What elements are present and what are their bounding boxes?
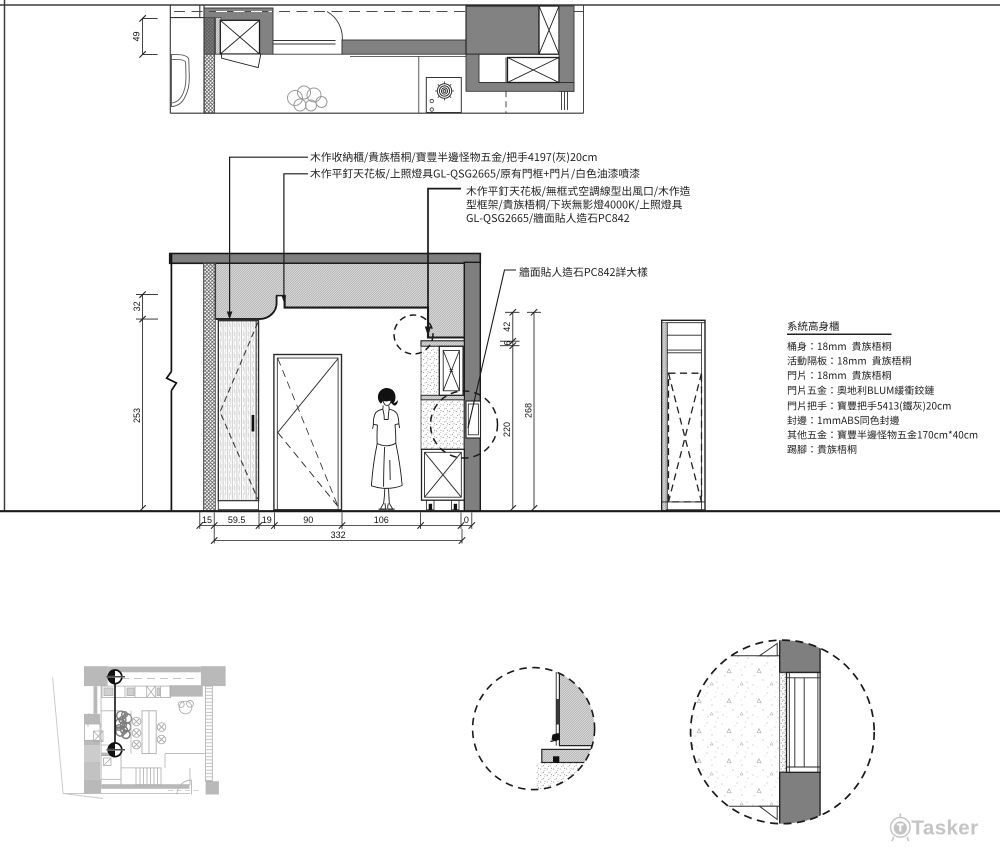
svg-text:6: 6: [503, 341, 513, 346]
svg-text:49: 49: [132, 31, 142, 41]
svg-text:15: 15: [202, 515, 212, 525]
svg-text:90: 90: [303, 515, 313, 525]
svg-text:42: 42: [502, 322, 512, 332]
svg-text:106: 106: [374, 515, 389, 525]
svg-text:0: 0: [464, 515, 469, 525]
svg-text:Tasker: Tasker: [912, 817, 979, 840]
svg-text:253: 253: [132, 408, 142, 423]
svg-text:59.5: 59.5: [228, 515, 246, 525]
svg-text:332: 332: [331, 530, 346, 540]
svg-text:220: 220: [502, 422, 512, 437]
svg-text:19: 19: [262, 515, 272, 525]
svg-text:268: 268: [523, 403, 533, 418]
svg-text:32: 32: [132, 301, 142, 311]
